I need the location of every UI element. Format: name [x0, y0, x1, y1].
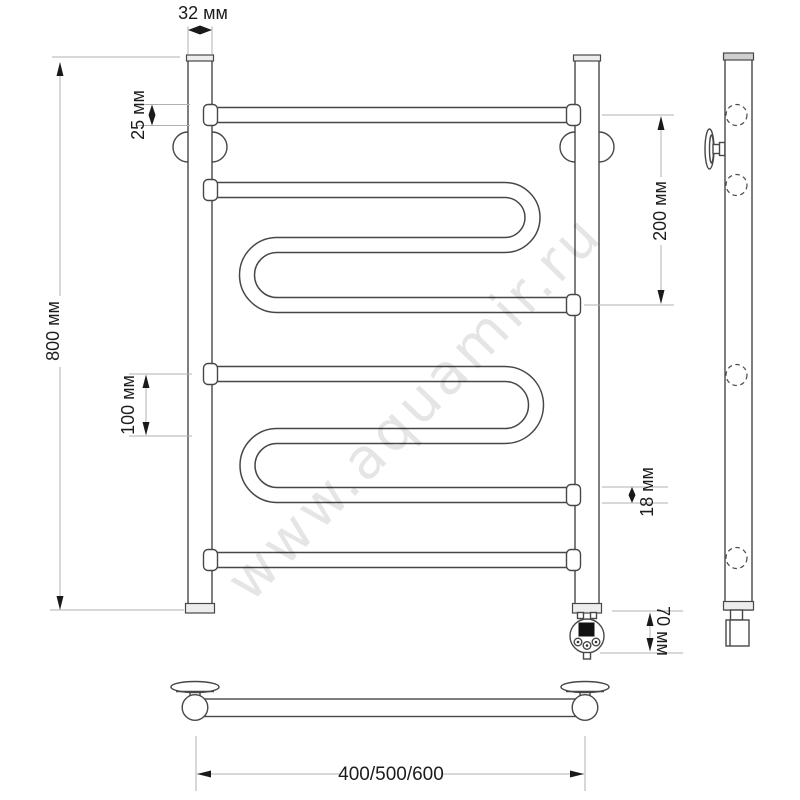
- left-post: [186, 55, 215, 613]
- right-post-top-cap: [574, 55, 601, 61]
- dimension-heater-offset: 70 мм: [600, 606, 683, 656]
- bottom-view-bar: [195, 699, 585, 717]
- dim-label-200mm: 200 мм: [650, 181, 670, 241]
- dimension-width-variants: 400/500/600: [196, 736, 585, 791]
- wall-mount-bumps: [173, 132, 614, 162]
- side-post-top-cap: [724, 53, 754, 60]
- drawing-canvas: 32 мм 25 мм 800 мм 100 мм 200 мм: [0, 0, 800, 800]
- dimension-post-width: 32 мм: [178, 3, 228, 54]
- left-post-top-cap: [187, 55, 214, 61]
- plug-stem: [584, 653, 591, 660]
- side-post: [725, 55, 752, 610]
- electric-heater-plug: [570, 613, 604, 660]
- bottom-view-right-post-section: [572, 695, 598, 721]
- side-heater-unit: [717, 610, 749, 651]
- dimension-tube-diameter: 18 мм: [602, 467, 668, 517]
- towel-rail-technical-drawing: 32 мм 25 мм 800 мм 100 мм 200 мм: [0, 0, 800, 800]
- dim-label-32mm: 32 мм: [178, 3, 228, 23]
- bottom-view-left-post-section: [182, 695, 208, 721]
- dimension-overall-height: 800 мм: [43, 57, 184, 610]
- side-view: [705, 53, 754, 651]
- left-post-bottom-cap: [186, 604, 215, 614]
- dim-label-25mm: 25 мм: [128, 90, 148, 140]
- dim-label-width-variants: 400/500/600: [338, 764, 444, 785]
- right-post: [573, 55, 602, 613]
- dimension-rail-spacing: 100 мм: [118, 374, 192, 436]
- bottom-view: 400/500/600: [171, 682, 609, 792]
- dim-label-18mm: 18 мм: [637, 467, 657, 517]
- side-post-bottom-cap: [724, 602, 754, 611]
- dim-label-800mm: 800 мм: [43, 301, 63, 361]
- side-wall-bracket: [705, 129, 725, 169]
- dim-label-100mm: 100 мм: [118, 375, 138, 435]
- dim-label-70mm: 70 мм: [653, 606, 673, 656]
- plug-cord-block: [579, 623, 595, 637]
- right-post-bottom-cap: [573, 604, 602, 614]
- dimension-top-rail-offset: 25 мм: [128, 90, 190, 140]
